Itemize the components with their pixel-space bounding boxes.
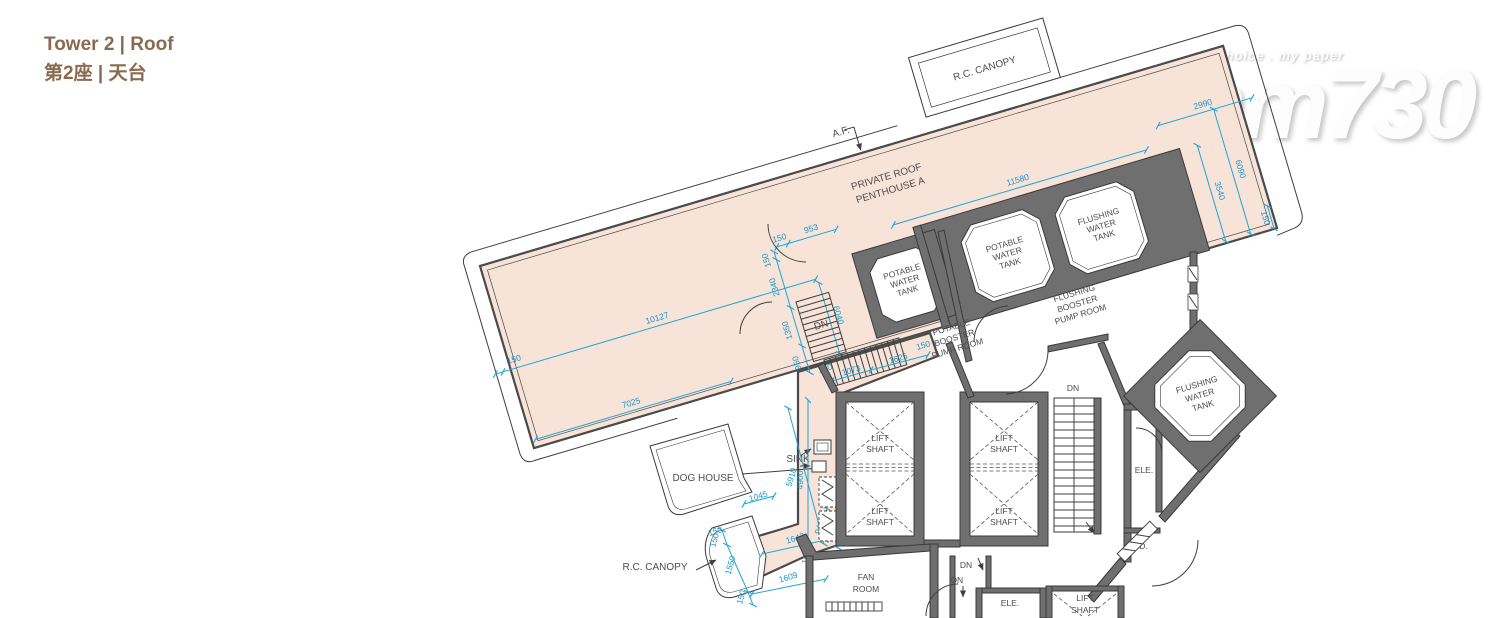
lift-shaft-2b-line2: SHAFT	[990, 517, 1018, 527]
ele-label-mid: ELE.	[1135, 465, 1153, 475]
wall-ele-bottom-left	[976, 588, 982, 618]
stair-right-wall	[1094, 398, 1101, 534]
sink-fixture	[814, 440, 831, 454]
wall-ele-bottom-top	[976, 588, 1046, 593]
flushing-tank-se: FLUSHING WATER TANK	[1124, 320, 1277, 473]
wall-stair-top	[1048, 334, 1108, 352]
wall-corridor-left	[950, 556, 955, 618]
dog-house-outline	[650, 424, 752, 515]
lift-shaft-2a-line2: SHAFT	[990, 444, 1018, 454]
lift-shaft-bottom-line1: LIFT	[1076, 593, 1093, 603]
lift-shaft-2b-line1: LIFT	[995, 506, 1012, 516]
se-hatched-door	[1117, 521, 1157, 561]
wall-lift-bottom-top	[1046, 586, 1124, 591]
dn-label-corridor-2: DN	[951, 575, 963, 585]
dn-label-main-stair: DN	[1067, 383, 1079, 393]
lift-shaft-1a-line2: SHAFT	[866, 444, 894, 454]
wall-lift-bottom-right	[1118, 586, 1124, 618]
dn-arrow-1	[978, 558, 983, 570]
ele-label-bottom: ELE.	[1001, 598, 1019, 608]
door-arc-stair-top	[1006, 352, 1048, 394]
fan-room-line1: FAN	[858, 572, 875, 582]
se-door-panel	[1117, 521, 1157, 561]
lift-shaft-1b-line2: SHAFT	[866, 517, 894, 527]
wall-fan-room-right	[930, 544, 938, 618]
lift-shaft-2a-line1: LIFT	[995, 433, 1012, 443]
dn-label-corridor-1: DN	[960, 560, 972, 570]
lift-shaft-1b-line1: LIFT	[871, 506, 888, 516]
dog-house-label: DOG HOUSE	[672, 473, 733, 484]
vent-strip-1	[819, 477, 836, 507]
rc-canopy-bottom-label: R.C. CANOPY	[622, 562, 687, 573]
sink-step	[812, 461, 826, 472]
wall-ele-bottom-right	[1040, 588, 1046, 618]
dim-1609: 1609	[778, 570, 799, 585]
vent-strip-2	[819, 511, 836, 541]
wall-corridor-right	[986, 556, 991, 590]
wall-fan-room-left	[806, 556, 813, 618]
floor-plan-svg: R.C. CANOPY A.F. PRIVATE ROOF PENTHOUSE …	[0, 0, 1496, 618]
lift-shaft-bottom-line2: SHAFT	[1071, 605, 1099, 615]
wall-ele-left	[1124, 404, 1131, 562]
lift-shaft-1a-line1: LIFT	[871, 433, 888, 443]
sink-label: SINK	[786, 454, 810, 465]
door-arc-se	[1152, 540, 1198, 586]
fan-room-line2: ROOM	[853, 584, 879, 594]
wall-lift-bottom-left	[1046, 586, 1052, 618]
af-label: A.F.	[831, 125, 851, 140]
